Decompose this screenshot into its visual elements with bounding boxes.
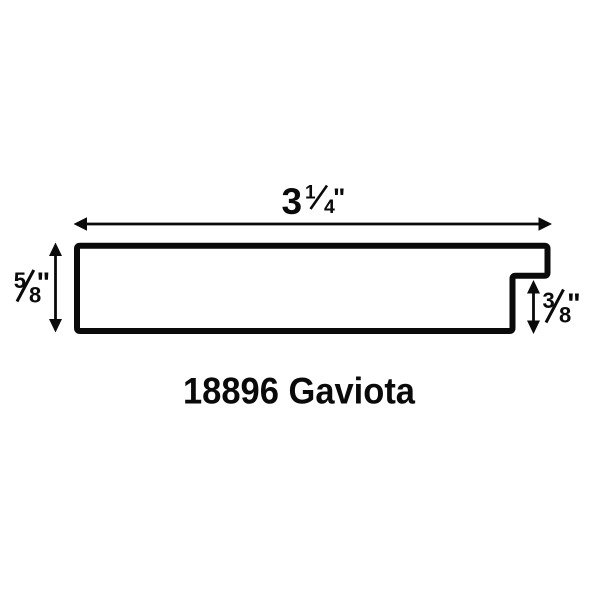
svg-text:": " [37, 268, 51, 300]
svg-text:": " [567, 289, 581, 321]
svg-text:3: 3 [282, 181, 303, 222]
svg-text:": " [333, 183, 345, 213]
svg-text:1: 1 [305, 183, 316, 204]
svg-text:18896 Gaviota: 18896 Gaviota [183, 371, 415, 412]
